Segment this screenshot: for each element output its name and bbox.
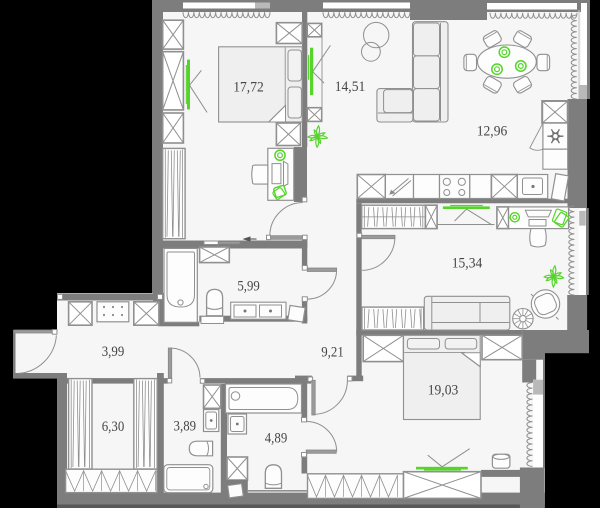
svg-text:12,96: 12,96	[477, 123, 508, 139]
svg-text:5,99: 5,99	[237, 278, 260, 294]
svg-text:9,21: 9,21	[321, 344, 344, 360]
svg-text:3,89: 3,89	[174, 418, 197, 434]
svg-text:6,30: 6,30	[102, 419, 125, 435]
svg-text:19,03: 19,03	[428, 382, 459, 398]
svg-text:14,51: 14,51	[335, 79, 366, 95]
svg-text:3,99: 3,99	[102, 344, 125, 360]
svg-text:17,72: 17,72	[233, 79, 264, 95]
svg-text:15,34: 15,34	[452, 255, 483, 271]
svg-text:4,89: 4,89	[265, 430, 288, 446]
